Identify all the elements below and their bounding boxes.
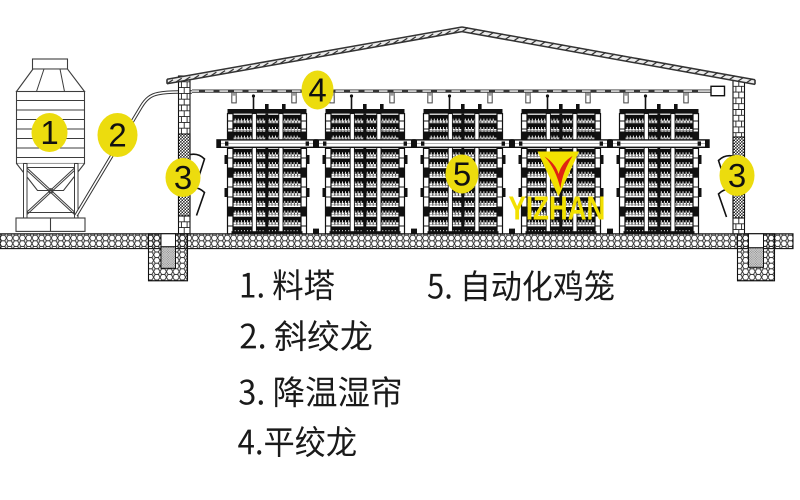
svg-text:2: 2: [108, 117, 126, 154]
svg-text:3: 3: [728, 157, 746, 194]
svg-text:1: 1: [40, 114, 58, 151]
svg-text:3: 3: [174, 159, 192, 196]
svg-text:YIZHAN: YIZHAN: [509, 191, 606, 228]
svg-text:4: 4: [308, 72, 326, 109]
svg-text:5: 5: [453, 156, 471, 193]
